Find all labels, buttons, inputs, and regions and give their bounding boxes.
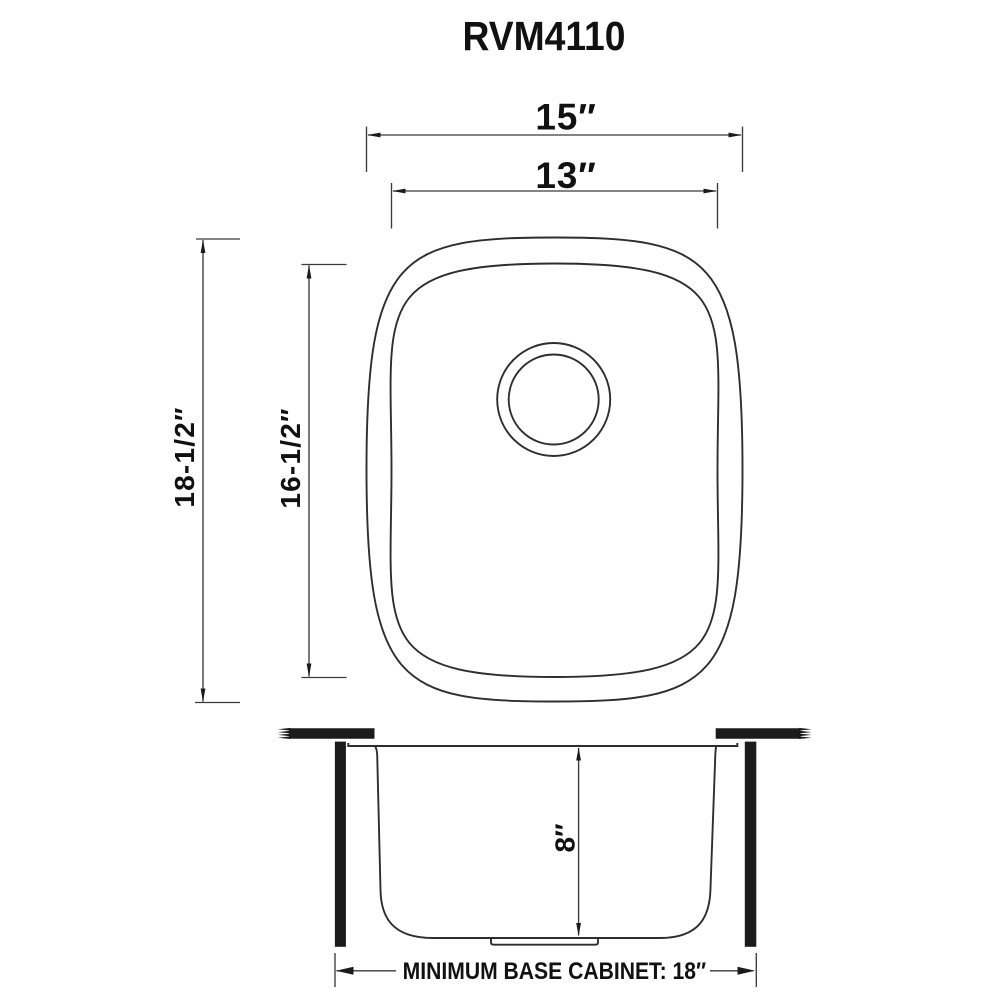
svg-text:13″: 13″	[535, 155, 596, 196]
svg-text:MINIMUM BASE CABINET: 18″: MINIMUM BASE CABINET: 18″	[403, 958, 707, 985]
svg-text:16-1/2″: 16-1/2″	[275, 407, 306, 508]
svg-text:RVM4110: RVM4110	[463, 13, 626, 59]
svg-text:18-1/2″: 18-1/2″	[169, 406, 200, 507]
svg-text:8″: 8″	[550, 824, 581, 853]
svg-text:15″: 15″	[535, 97, 596, 138]
